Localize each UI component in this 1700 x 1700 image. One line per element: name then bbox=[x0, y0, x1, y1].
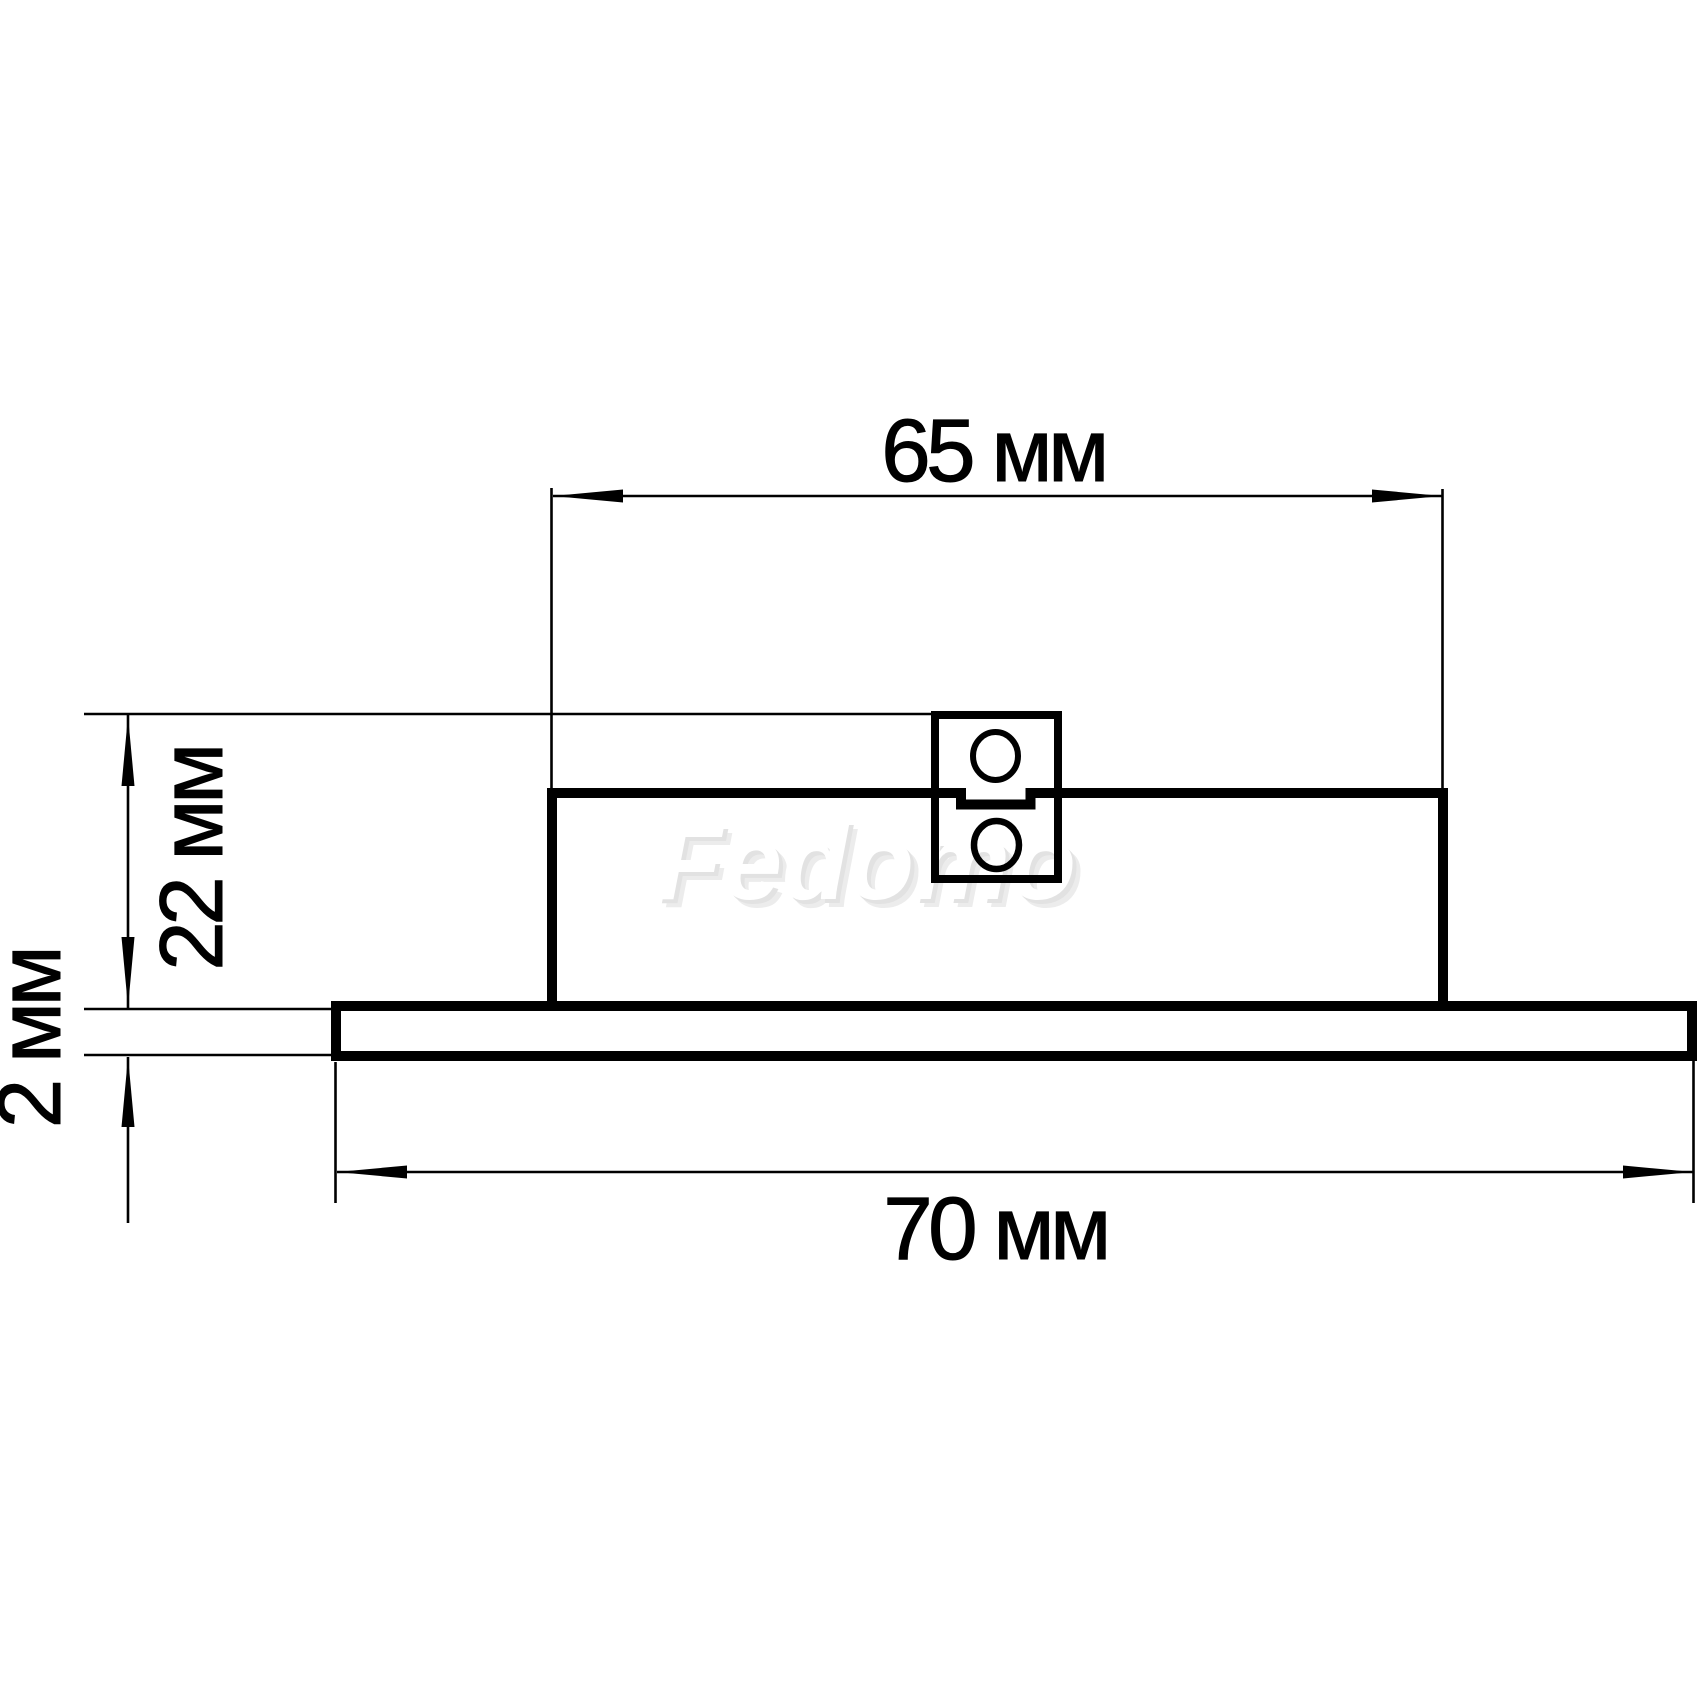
svg-text:70 мм: 70 мм bbox=[883, 1178, 1107, 1278]
svg-text:2 мм: 2 мм bbox=[0, 950, 79, 1129]
svg-text:65 мм: 65 мм bbox=[881, 400, 1105, 500]
svg-text:22 мм: 22 мм bbox=[141, 747, 241, 971]
